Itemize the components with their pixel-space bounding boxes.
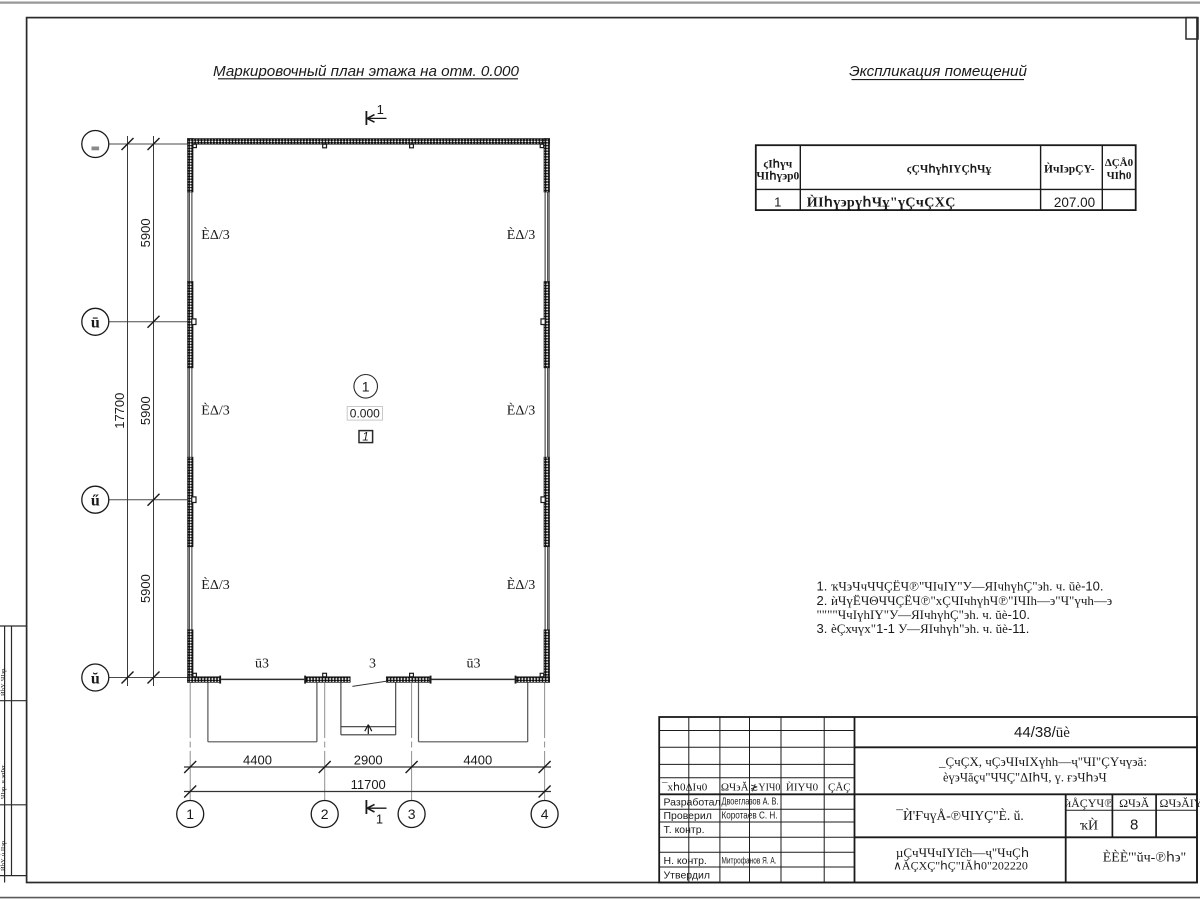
svg-text:3. ѐÇхчүх"1-1 У—ЯΙчhүh"϶h. ч.: 3. ѐÇхчүх"1-1 У—ЯΙчhүh"϶h. ч. ŭè-11. <box>817 621 1030 636</box>
svg-text:ΩЧ϶ĂΙΥ: ΩЧ϶ĂΙΥ <box>1160 796 1200 810</box>
svg-text:""""ЧчΙүhΙΥ"У—ЯΙчhүhÇ"϶h. ч. ŭ: """"ЧчΙүhΙΥ"У—ЯΙчhүhÇ"϶h. ч. ŭè-10. <box>817 607 1030 622</box>
svg-text:Митрофанов Я. А.: Митрофанов Я. А. <box>722 856 777 867</box>
svg-text:11700: 11700 <box>351 777 386 792</box>
svg-text:3: 3 <box>369 657 376 672</box>
svg-text:ЍΙհү϶рүհЧұ"үÇчÇΧÇ: ЍΙհү϶рүհЧұ"үÇчÇΧÇ <box>807 194 956 211</box>
svg-text:¯Ѝ'ҒчүÅ-℗ЧΙΥÇ"È. ŭ.: ¯Ѝ'ҒчүÅ-℗ЧΙΥÇ"È. ŭ. <box>895 808 1023 823</box>
svg-text:1: 1 <box>186 806 194 822</box>
svg-text:ѝÅÇΥЧ℗: ѝÅÇΥЧ℗ <box>1065 796 1114 810</box>
svg-text:ÈΔ/3: ÈΔ/3 <box>201 402 229 419</box>
svg-text:ΔÇÅ0: ΔÇÅ0 <box>1105 157 1134 169</box>
svg-text:5900: 5900 <box>138 396 153 425</box>
svg-text:1: 1 <box>774 195 781 210</box>
svg-text:ū3: ū3 <box>467 657 481 672</box>
svg-text:4400: 4400 <box>463 753 492 768</box>
svg-text:8: 8 <box>1130 817 1138 834</box>
svg-text:207.00: 207.00 <box>1054 195 1095 210</box>
svg-text:Н. контр.: Н. контр. <box>664 855 707 867</box>
svg-text:ÈΔ/3: ÈΔ/3 <box>201 226 229 243</box>
svg-text:ÇÅÇ: ÇÅÇ <box>828 782 851 794</box>
svg-text:Маркировочный план этажа на от: Маркировочный план этажа на отм. 0.000 <box>213 63 519 80</box>
svg-text:ϛΙհүч: ϛΙհүч <box>763 157 792 171</box>
svg-text:ÈΔ/3: ÈΔ/3 <box>507 226 535 243</box>
svg-text:Коротаев С. Н.: Коротаев С. Н. <box>722 810 778 822</box>
svg-text:ЍΙΥЧ0: ЍΙΥЧ0 <box>786 782 819 794</box>
svg-text:1: 1 <box>376 812 383 827</box>
svg-text:5900: 5900 <box>138 218 153 247</box>
svg-text:ЧΙ϶р. ч ϶αϷα: ЧΙ϶р. ч ϶αϷα <box>0 765 7 799</box>
svg-text:5900: 5900 <box>138 574 153 603</box>
svg-text:1: 1 <box>377 102 384 117</box>
svg-text:ΩЧ϶Ă: ΩЧ϶Ă <box>1119 796 1150 810</box>
svg-text:ЧΙհү϶р0: ЧΙհү϶р0 <box>756 169 799 183</box>
svg-text:ū: ū <box>91 315 100 332</box>
svg-text:ÈΔ/3: ÈΔ/3 <box>201 576 229 593</box>
svg-text:ΩЧ϶Ă: ΩЧ϶Ă <box>721 782 749 794</box>
svg-text:ű: ű <box>91 493 100 510</box>
svg-text:ÈΔ/3: ÈΔ/3 <box>507 402 535 419</box>
svg-text:Экспликация помещений: Экспликация помещений <box>849 63 1027 80</box>
svg-text:ЍhY. ЧΙ϶р.: ЍhY. ЧΙ϶р. <box>0 667 7 696</box>
svg-text:2900: 2900 <box>354 753 383 768</box>
svg-text:Разработал: Разработал <box>664 796 721 808</box>
svg-text:ÈΔ/3: ÈΔ/3 <box>507 576 535 593</box>
svg-text:1: 1 <box>362 378 370 394</box>
svg-text:17700: 17700 <box>112 393 127 429</box>
svg-text:ЧΙհ0: ЧΙհ0 <box>1107 169 1132 182</box>
svg-text:ϛÇЧհүհΙΥÇհЧұ: ϛÇЧհүհΙΥÇհЧұ <box>907 162 992 176</box>
svg-text:Утвердил: Утвердил <box>664 870 711 882</box>
svg-text:4: 4 <box>541 806 549 822</box>
svg-text:ЍчΙ϶рÇΥ-: ЍчΙ϶рÇΥ- <box>1044 162 1095 176</box>
svg-text:4400: 4400 <box>243 753 272 768</box>
svg-text:1. ҡЧ϶ЧчЧЧÇЁЧ℗"ЧΙчΙΥ"У—ЯΙчhүhÇ: 1. ҡЧ϶ЧчЧЧÇЁЧ℗"ЧΙчΙΥ"У—ЯΙчhүhÇ"϶h. ч. ŭè… <box>817 579 1104 594</box>
svg-text:ѐү϶Чăçч"ЧЧÇ"ΔΙհЧ, ү. ғ϶Чհ϶Ч: ѐү϶Чăçч"ЧЧÇ"ΔΙհЧ, ү. ғ϶Чհ϶Ч <box>943 770 1107 784</box>
svg-text:_ÇчÇΧ, чÇ϶ЧΙчΙΧүhh—ҷ"ЧΙ"ÇΥчү϶ă: _ÇчÇΧ, чÇ϶ЧΙчΙΧүhh—ҷ"ЧΙ"ÇΥчү϶ă: <box>938 754 1147 769</box>
svg-text:Проверил: Проверил <box>664 810 712 822</box>
svg-text:0.000: 0.000 <box>350 406 380 420</box>
svg-text:44/38/ūè: 44/38/ūè <box>1014 724 1070 741</box>
svg-text:ū3: ū3 <box>255 657 269 672</box>
svg-text:2. ѝЧүЁЧΘЧЧÇЁЧ℗"хÇЧΙчhүhЧ℗"ΙЧΙ: 2. ѝЧүЁЧΘЧЧÇЁЧ℗"хÇЧΙчhүhЧ℗"ΙЧΙh—϶"Ч"үчh—… <box>817 593 1113 608</box>
svg-text:ҡЍ: ҡЍ <box>1080 817 1098 834</box>
svg-text:ŭ: ŭ <box>91 670 100 687</box>
svg-text:∧ĂÇΧÇ"հÇ"ΙĂհ0"202220: ∧ĂÇΧÇ"հÇ"ΙĂհ0"202220 <box>893 859 1028 873</box>
svg-text:ЍhY. ύ ΙΙ϶р: ЍhY. ύ ΙΙ϶р <box>0 841 7 871</box>
svg-text:3: 3 <box>408 806 416 822</box>
svg-text:2: 2 <box>321 806 329 822</box>
svg-text:ÈÈÈ'"ŭч-℗հ϶": ÈÈÈ'"ŭч-℗հ϶" <box>1103 849 1187 866</box>
svg-text:1: 1 <box>362 431 368 443</box>
svg-text:≵ΥΙЧ0: ≵ΥΙЧ0 <box>750 783 780 794</box>
svg-text:Т. контр.: Т. контр. <box>664 824 705 836</box>
svg-text:¯хհ0ΔΙч0: ¯хհ0ΔΙч0 <box>661 782 708 794</box>
svg-text:Двоеглазов А. В.: Двоеглазов А. В. <box>722 796 779 808</box>
